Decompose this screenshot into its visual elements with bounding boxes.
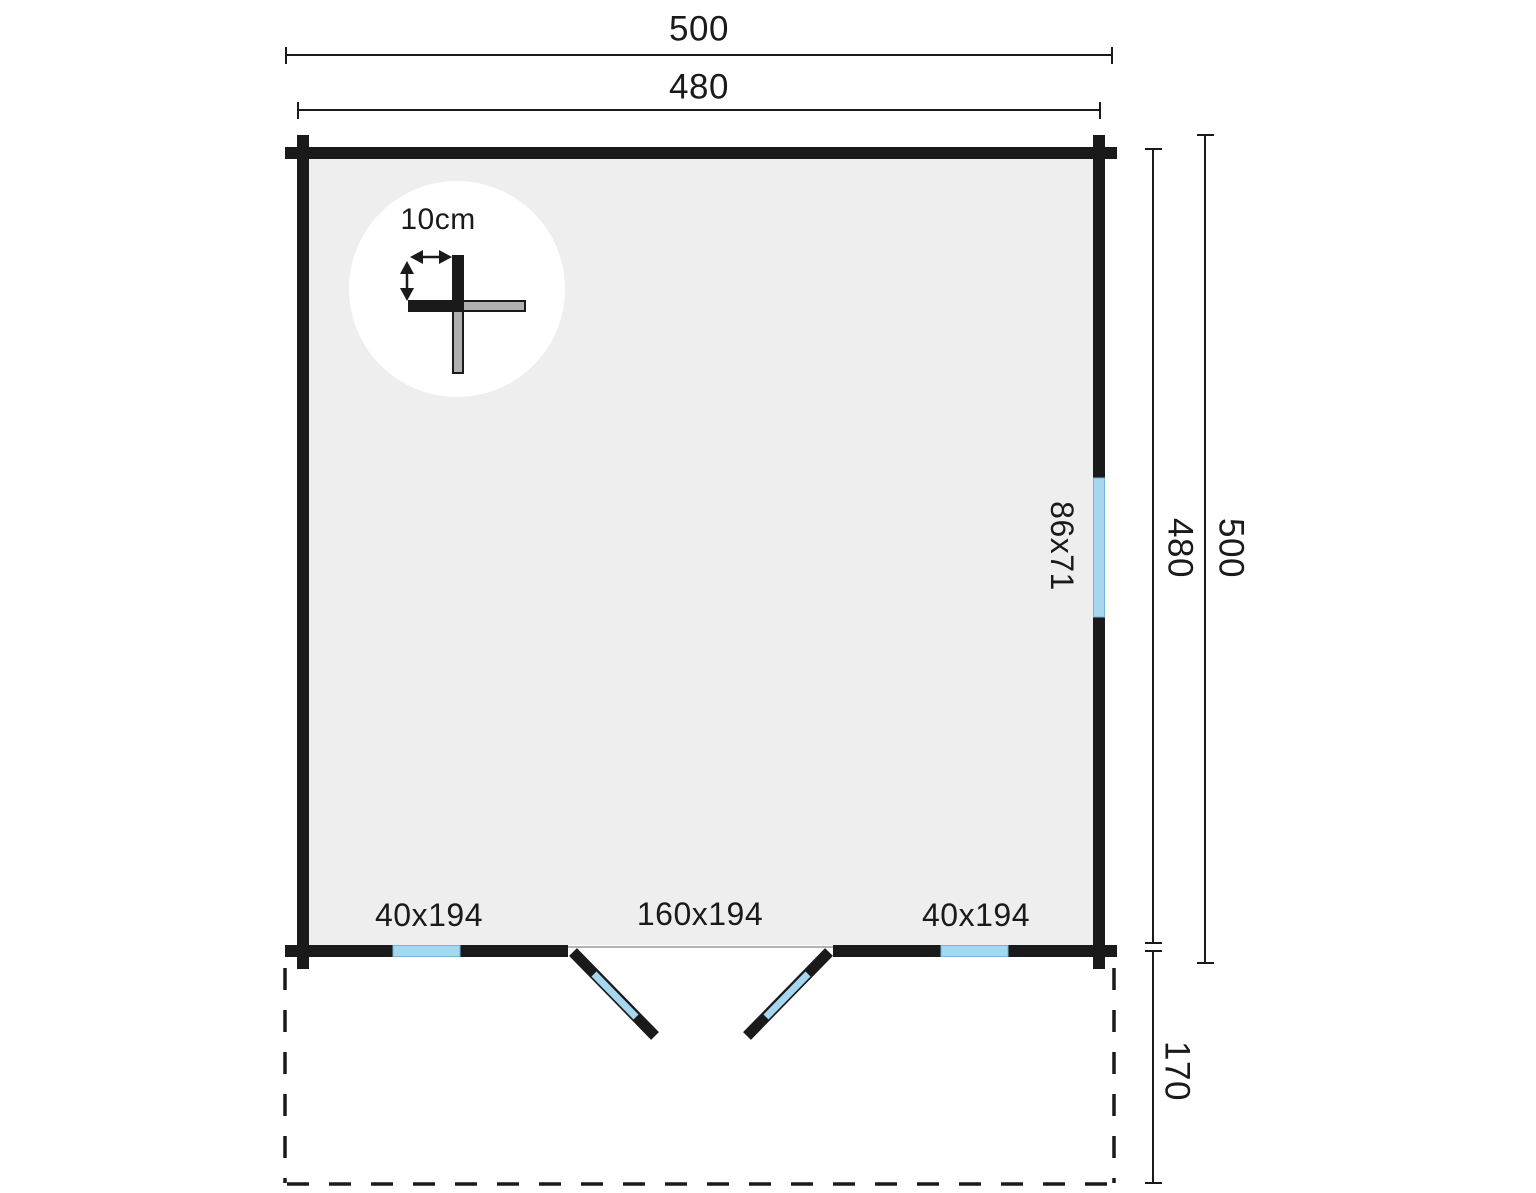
front-window-left-label: 40x194	[375, 899, 483, 931]
dim-label-right-overall: 500	[1214, 518, 1249, 578]
detail-log-vertical-gray	[453, 311, 463, 373]
wall-left	[297, 135, 309, 969]
door-leaf-right-glass	[766, 974, 808, 1017]
floor-plan-drawing	[0, 0, 1536, 1193]
front-window-left-glass	[393, 946, 460, 957]
door-leaf-left-glass	[594, 974, 636, 1017]
side-window-label: 86x71	[1046, 501, 1078, 591]
dim-label-top-overall: 500	[669, 12, 729, 47]
front-door-label: 160x194	[637, 898, 763, 930]
detail-wall-thickness-label: 10cm	[400, 205, 475, 235]
front-window-right-label: 40x194	[922, 899, 1030, 931]
wall-top	[285, 147, 1117, 159]
detail-log-horizontal-gray	[463, 301, 525, 311]
floor-plan-canvas: 500 480 40x194 160x194 40x194 86x71 480 …	[0, 0, 1536, 1193]
dim-label-right-inner: 480	[1163, 518, 1198, 578]
terrace-outline	[285, 968, 1114, 1184]
dim-label-terrace-depth: 170	[1160, 1041, 1195, 1101]
front-window-right-glass	[941, 946, 1008, 957]
dim-label-top-inner: 480	[669, 70, 729, 105]
side-window-glass	[1094, 478, 1105, 617]
